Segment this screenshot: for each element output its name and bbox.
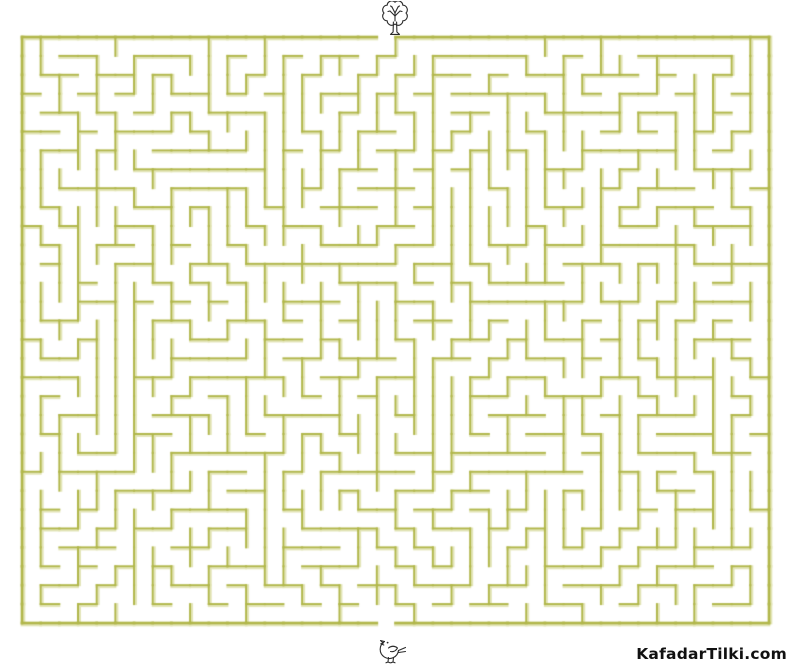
tree-icon	[376, 1, 414, 37]
bird-icon	[374, 633, 410, 665]
site-label: KafadarTilki.com	[636, 645, 787, 663]
maze-worksheet-page: KafadarTilki.com	[0, 0, 791, 666]
maze-canvas	[0, 0, 791, 666]
